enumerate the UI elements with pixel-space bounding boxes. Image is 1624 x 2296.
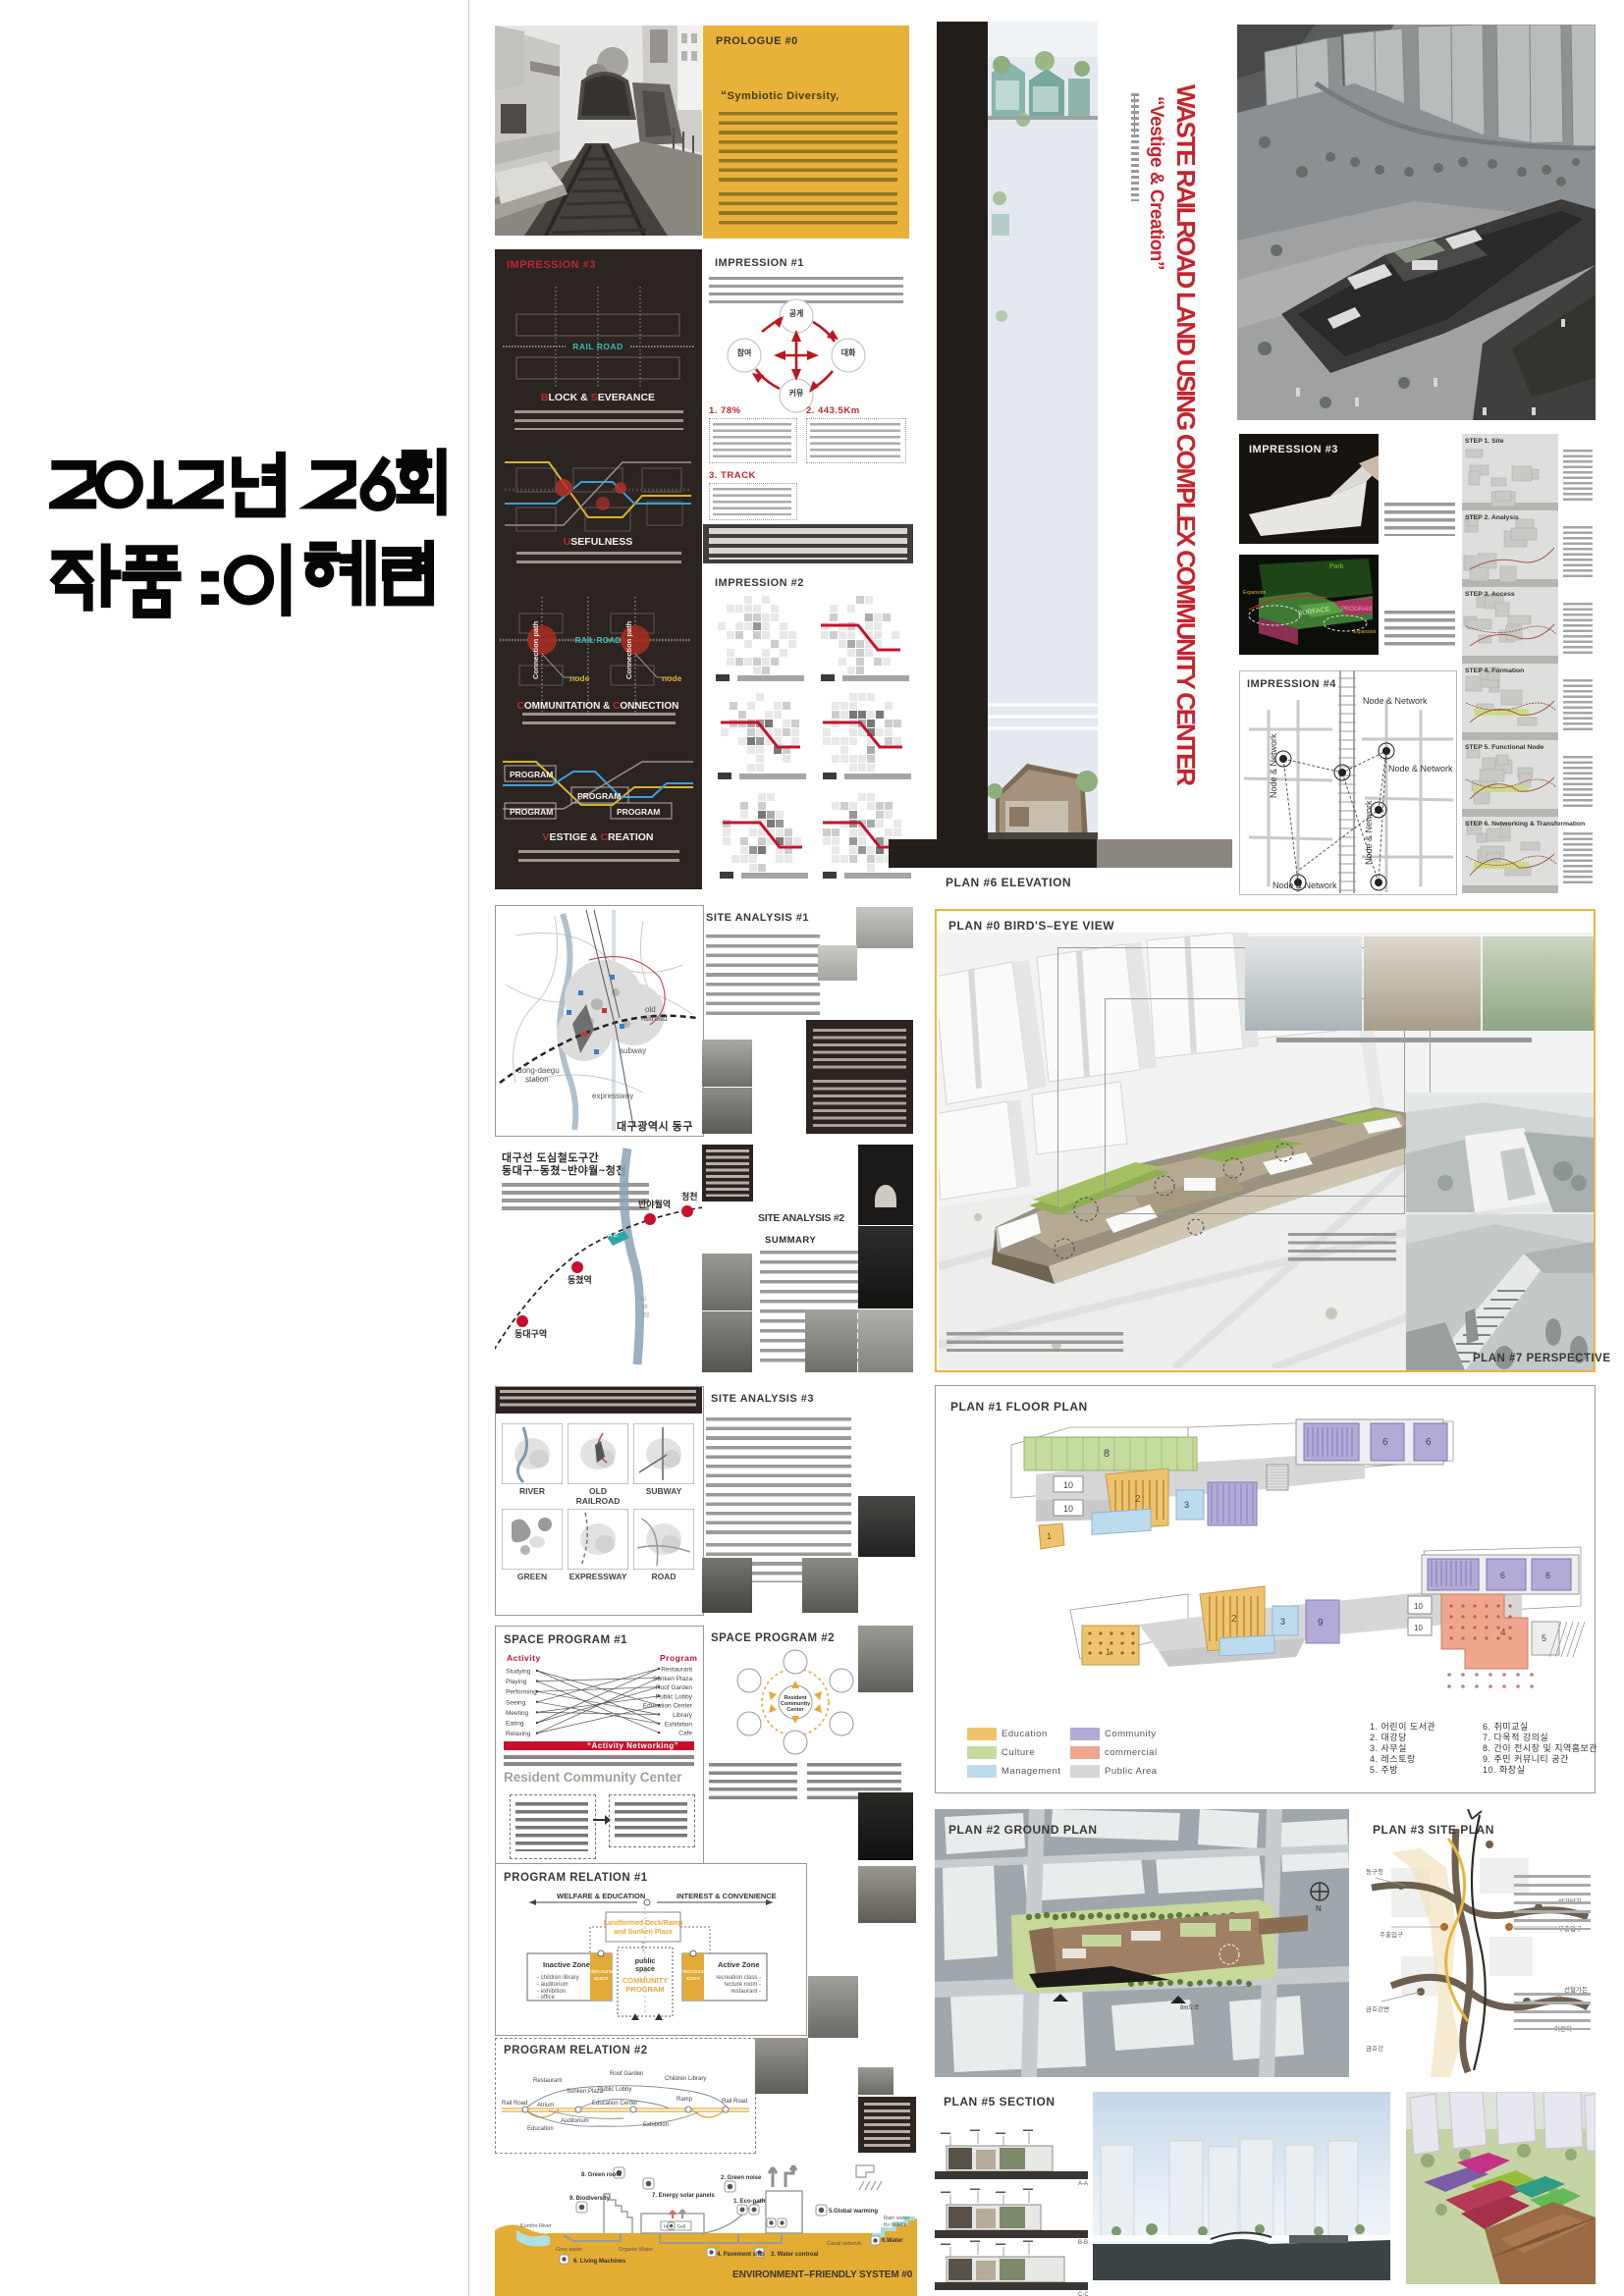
- svg-text:8. Green roofs: 8. Green roofs: [581, 2172, 622, 2178]
- svg-text:Relaxing: Relaxing: [506, 1731, 531, 1737]
- svg-text:Canal network: Canal network: [827, 2241, 861, 2247]
- svg-text:STEP 2. Analysis: STEP 2. Analysis: [1465, 514, 1519, 521]
- svg-text:RAIL ROAD: RAIL ROAD: [574, 635, 621, 645]
- svg-text:참여: 참여: [737, 347, 752, 357]
- svg-text:node: node: [662, 673, 682, 683]
- svg-text:Library: Library: [673, 1712, 693, 1719]
- svg-text:and Sunken Plaza: and Sunken Plaza: [614, 1929, 673, 1936]
- svg-text:Restaurant: Restaurant: [533, 2078, 563, 2084]
- svg-text:- office: - office: [537, 1995, 556, 2001]
- svg-text:STEP 4. Formation: STEP 4. Formation: [1465, 667, 1524, 674]
- svg-text:▬▬: ▬▬: [970, 2187, 980, 2192]
- svg-text:RAIL ROAD: RAIL ROAD: [572, 342, 623, 351]
- svg-text:▬▬: ▬▬: [996, 2241, 1005, 2247]
- svg-text:4: 4: [1500, 1628, 1506, 1638]
- svg-text:SITE: SITE: [603, 1232, 619, 1239]
- svg-text:expressway: expressway: [592, 1092, 633, 1100]
- svg-text:Connection path: Connection path: [531, 620, 540, 679]
- svg-text:PROGRAM: PROGRAM: [510, 807, 553, 817]
- svg-text:동구청: 동구청: [1366, 1868, 1383, 1876]
- svg-text:Restaurant: Restaurant: [661, 1667, 692, 1674]
- svg-text:STEP 5. Functional Node: STEP 5. Functional Node: [1465, 744, 1544, 751]
- svg-text:N: N: [1316, 1904, 1322, 1913]
- svg-text:▬▬: ▬▬: [970, 2239, 980, 2244]
- svg-text:▬▬: ▬▬: [941, 2189, 950, 2195]
- svg-text:Connection path: Connection path: [624, 620, 633, 679]
- svg-text:restaurant -: restaurant -: [731, 1989, 761, 1995]
- svg-text:5: 5: [1542, 1633, 1546, 1643]
- svg-text:▬▬: ▬▬: [941, 2241, 950, 2247]
- svg-text:2. Green noise: 2. Green noise: [721, 2175, 762, 2181]
- svg-text:Center: Center: [786, 1707, 804, 1713]
- svg-text:10: 10: [1414, 1624, 1423, 1632]
- svg-text:intercourse: intercourse: [587, 1969, 614, 1975]
- svg-text:1: 1: [1106, 1647, 1110, 1657]
- svg-text:space: space: [594, 1976, 609, 1982]
- svg-text:dong-daegu: dong-daegu: [517, 1066, 560, 1075]
- svg-text:6: 6: [1426, 1437, 1432, 1448]
- svg-text:Expansion: Expansion: [1243, 590, 1267, 596]
- svg-text:10: 10: [1063, 1504, 1073, 1514]
- svg-text:청천: 청천: [681, 1191, 698, 1201]
- svg-text:3: 3: [1184, 1500, 1189, 1510]
- svg-text:USEFULNESS: USEFULNESS: [564, 536, 633, 548]
- svg-text:INTEREST & CONVENIENCE: INTEREST & CONVENIENCE: [677, 1893, 777, 1900]
- svg-text:Atrium: Atrium: [537, 2103, 554, 2109]
- svg-text:Active Zone: Active Zone: [718, 1960, 760, 1969]
- svg-text:공게: 공게: [789, 308, 804, 318]
- svg-text:9. Biodiversity: 9. Biodiversity: [569, 2196, 611, 2202]
- svg-text:1. Eco-path: 1. Eco-path: [733, 2199, 766, 2205]
- svg-text:Inactive Zone: Inactive Zone: [543, 1960, 590, 1969]
- svg-text:- auditorium: - auditorium: [537, 1982, 568, 1988]
- svg-text:6: 6: [1500, 1571, 1505, 1580]
- svg-text:6: 6: [1382, 1437, 1388, 1448]
- svg-text:Node & Network: Node & Network: [1272, 881, 1337, 890]
- svg-text:- children library: - children library: [537, 1975, 579, 1981]
- svg-text:PROGRAM: PROGRAM: [577, 791, 621, 801]
- svg-text:Children Library: Children Library: [665, 2076, 706, 2082]
- svg-text:▬▬: ▬▬: [1023, 2187, 1033, 2192]
- svg-text:Public Lobby: Public Lobby: [656, 1693, 693, 1700]
- svg-text:Organic Water: Organic Water: [619, 2247, 653, 2253]
- svg-text:lecture room -: lecture room -: [725, 1982, 761, 1988]
- svg-text:Roof Garden: Roof Garden: [656, 1684, 693, 1691]
- svg-text:금호강변: 금호강변: [1366, 2004, 1389, 2013]
- svg-text:Kumho River: Kumho River: [520, 2223, 552, 2229]
- svg-text:▬▬: ▬▬: [1023, 2239, 1033, 2244]
- svg-text:PROGRAM: PROGRAM: [1341, 607, 1372, 613]
- svg-text:Roof Garden: Roof Garden: [610, 2071, 643, 2077]
- svg-text:railroad: railroad: [641, 1014, 668, 1023]
- svg-text:Auditorium: Auditorium: [561, 2118, 589, 2124]
- svg-text:PROGRAM: PROGRAM: [617, 807, 660, 817]
- svg-text:Exhibition: Exhibition: [665, 1721, 693, 1728]
- svg-text:주출입구: 주출입구: [1380, 1930, 1403, 1939]
- svg-text:Park: Park: [1329, 563, 1344, 570]
- svg-text:VESTIGE & CREATION: VESTIGE & CREATION: [542, 831, 653, 843]
- svg-text:node: node: [569, 673, 590, 683]
- svg-text:10: 10: [1063, 1480, 1073, 1490]
- svg-text:Playing: Playing: [506, 1679, 527, 1685]
- svg-text:Eating: Eating: [506, 1721, 524, 1728]
- svg-text:Node & Network: Node & Network: [1269, 733, 1278, 798]
- svg-text:Performing: Performing: [506, 1689, 537, 1696]
- svg-text:▬▬: ▬▬: [1023, 2128, 1033, 2133]
- svg-text:6: 6: [1545, 1571, 1550, 1580]
- svg-text:WELFARE & EDUCATION: WELFARE & EDUCATION: [557, 1893, 645, 1900]
- svg-text:3: 3: [1280, 1617, 1285, 1627]
- svg-text:BLOCK & SEVERANCE: BLOCK & SEVERANCE: [541, 392, 655, 403]
- svg-text:subway: subway: [620, 1046, 646, 1055]
- svg-text:Node & Network: Node & Network: [1388, 764, 1453, 774]
- svg-text:Public Lobby: Public Lobby: [598, 2087, 631, 2093]
- svg-text:동대구역: 동대구역: [514, 1328, 547, 1339]
- svg-text:▬▬: ▬▬: [941, 2130, 950, 2136]
- svg-text:PROGRAM: PROGRAM: [510, 770, 553, 779]
- svg-text:2: 2: [1135, 1494, 1141, 1505]
- svg-text:커뮤: 커뮤: [789, 388, 804, 398]
- svg-text:4. Pavement slab: 4. Pavement slab: [717, 2252, 765, 2258]
- svg-text:동쳤역: 동쳤역: [568, 1274, 592, 1285]
- svg-text:5.Global warming: 5.Global warming: [829, 2209, 878, 2215]
- svg-text:6. Living Machines: 6. Living Machines: [573, 2259, 626, 2265]
- svg-text:C-C': C-C': [1078, 2292, 1088, 2296]
- svg-text:Exhibition: Exhibition: [643, 2122, 669, 2128]
- svg-text:Education Center: Education Center: [592, 2101, 637, 2107]
- svg-text:STEP 6. Networking & Transform: STEP 6. Networking & Transformation: [1465, 821, 1585, 828]
- svg-text:7. Energy solar panels: 7. Energy solar panels: [652, 2193, 715, 2199]
- svg-text:Expansion: Expansion: [1353, 629, 1377, 635]
- svg-text:Node & Network: Node & Network: [1363, 696, 1428, 706]
- svg-text:Seeing: Seeing: [506, 1699, 526, 1706]
- svg-text:Education: Education: [527, 2126, 554, 2132]
- svg-text:intercourse: intercourse: [679, 1969, 706, 1975]
- svg-text:8m도로: 8m도로: [1180, 2004, 1200, 2011]
- svg-text:Rail Road: Rail Road: [722, 2099, 747, 2105]
- svg-text:COMMUNITATION & CONNECTION: COMMUNITATION & CONNECTION: [517, 701, 679, 712]
- svg-text:10: 10: [1414, 1602, 1423, 1611]
- svg-text:space: space: [686, 1976, 701, 1982]
- svg-text:Ramp: Ramp: [677, 2097, 693, 2103]
- svg-text:Meeting: Meeting: [506, 1710, 529, 1717]
- svg-text:2: 2: [1231, 1614, 1237, 1625]
- svg-text:3. Water controal: 3. Water controal: [771, 2252, 819, 2258]
- svg-text:Rain water: Rain water: [884, 2216, 909, 2221]
- svg-text:▬▬: ▬▬: [970, 2128, 980, 2133]
- svg-text:Rail Road: Rail Road: [502, 2101, 527, 2107]
- svg-text:반야월역: 반야월역: [638, 1199, 671, 1209]
- svg-text:9: 9: [1318, 1618, 1324, 1629]
- svg-text:Cafe: Cafe: [678, 1731, 692, 1737]
- svg-text:Studying: Studying: [506, 1669, 531, 1676]
- svg-text:대화: 대화: [841, 347, 856, 357]
- svg-text:STEP 1. Site: STEP 1. Site: [1465, 438, 1504, 445]
- svg-text:for toilet's: for toilet's: [884, 2222, 907, 2228]
- svg-text:station: station: [525, 1075, 549, 1084]
- svg-text:old: old: [645, 1005, 656, 1014]
- svg-text:Landformed Deck/Ramp: Landformed Deck/Ramp: [604, 1920, 683, 1927]
- svg-text:금호강: 금호강: [1366, 2044, 1383, 2053]
- svg-text:8: 8: [1104, 1448, 1110, 1460]
- svg-text:Node & Network: Node & Network: [1364, 800, 1374, 865]
- svg-text:STEP 3. Access: STEP 3. Access: [1465, 591, 1515, 598]
- svg-text:▬▬: ▬▬: [996, 2189, 1005, 2195]
- svg-text:Grey water: Grey water: [556, 2247, 582, 2253]
- svg-text:6.Water: 6.Water: [882, 2238, 903, 2244]
- svg-text:recreation class -: recreation class -: [716, 1975, 761, 1981]
- svg-text:▬▬: ▬▬: [996, 2130, 1005, 2136]
- svg-text:Education Center: Education Center: [643, 1703, 693, 1710]
